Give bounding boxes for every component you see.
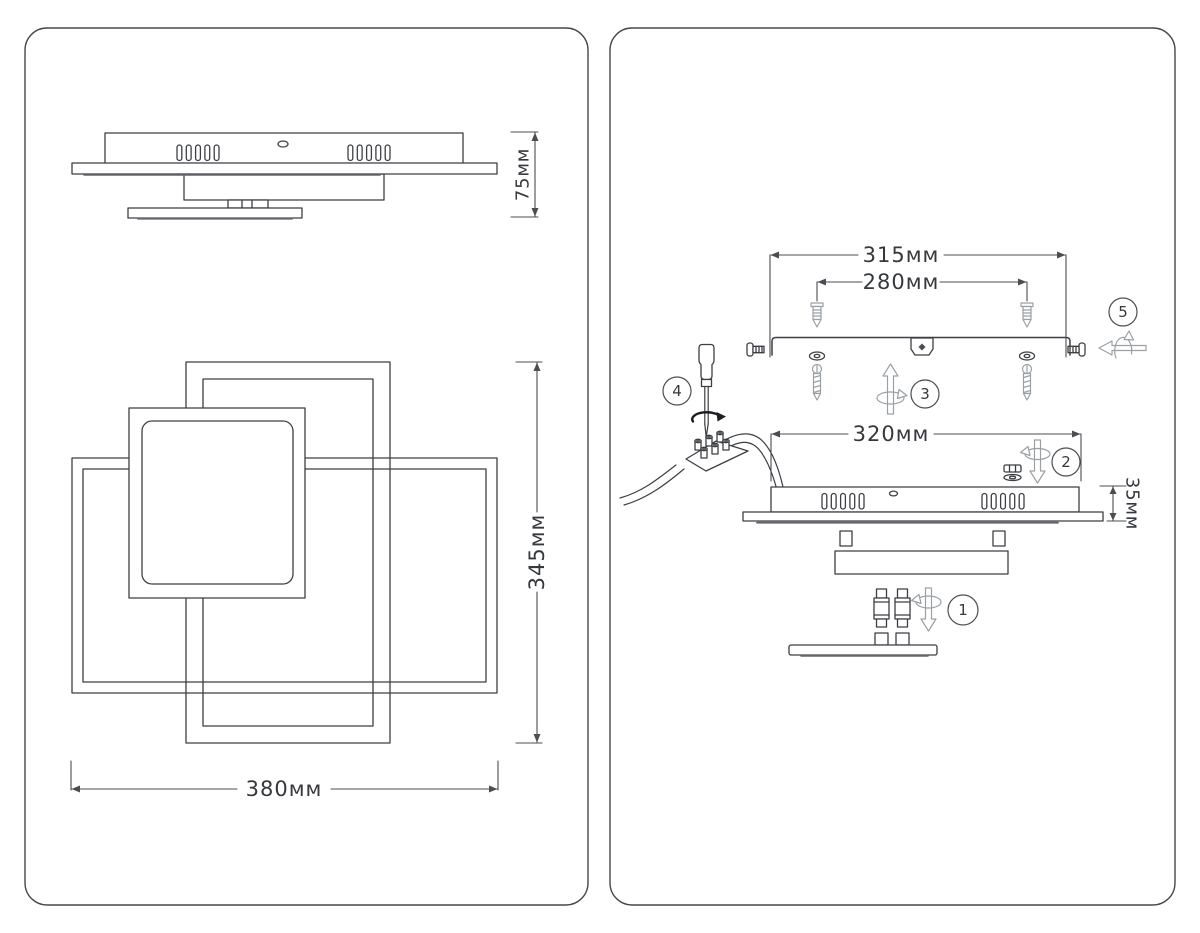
- screw-icon-left: [813, 365, 822, 401]
- left-panel: 75мм 345мм: [25, 28, 588, 905]
- installation-instruction-sheet: 75мм 345мм: [0, 0, 1200, 933]
- plan-width-label: 380мм: [246, 777, 323, 801]
- step-1-number: 1: [958, 601, 968, 619]
- square-light-panel: [129, 408, 305, 598]
- latch-tab-left: [840, 531, 852, 546]
- step-2-number: 2: [1061, 453, 1071, 471]
- bracket-length-label: 315мм: [863, 243, 940, 267]
- washer-icon-right: [1020, 352, 1035, 360]
- plate-bar: [789, 645, 937, 655]
- base-height-label: 35мм: [1122, 477, 1143, 530]
- base-length-label: 320мм: [853, 422, 930, 446]
- lamp-baseplate-side: [72, 163, 497, 175]
- step-2-badge: 2: [1052, 448, 1080, 476]
- plate-post-left: [875, 633, 888, 645]
- latch-tab-right: [993, 531, 1005, 546]
- ceiling-canopy-side: [128, 208, 302, 219]
- washer-icon-left: [810, 352, 825, 360]
- side-height-label: 75мм: [513, 148, 534, 201]
- lamp-body-side: [105, 133, 463, 165]
- step-4-number: 4: [672, 382, 682, 400]
- lamp-body-exploded: [743, 487, 1103, 523]
- connector-icon-left: [874, 589, 889, 627]
- step-5-number: 5: [1118, 303, 1128, 321]
- step-3-badge: 3: [911, 380, 939, 408]
- plate-post-right: [896, 633, 909, 645]
- step-3-number: 3: [920, 385, 930, 403]
- screw-icon-right: [1023, 365, 1032, 401]
- lamp-baseplate: [743, 512, 1103, 521]
- right-panel-border: [610, 28, 1175, 905]
- connector-icon-right: [895, 589, 910, 627]
- instruction-drawing: 75мм 345мм: [0, 0, 1200, 933]
- right-panel: 315мм 280мм: [610, 28, 1175, 905]
- anchor-spacing-label: 280мм: [863, 270, 940, 294]
- step-1-badge: 1: [948, 595, 978, 625]
- plan-height-label: 345мм: [525, 514, 549, 591]
- canopy-bar: [835, 551, 1008, 574]
- step-5-badge: 5: [1109, 298, 1137, 326]
- step-4-badge: 4: [663, 377, 691, 405]
